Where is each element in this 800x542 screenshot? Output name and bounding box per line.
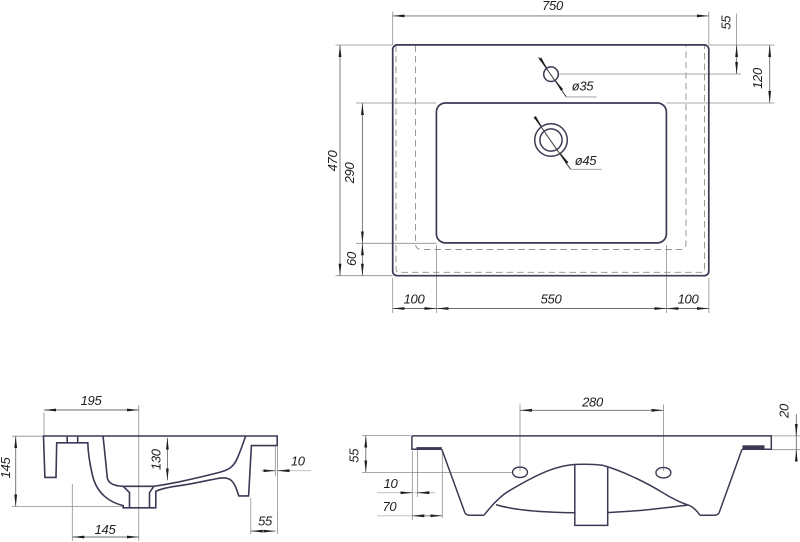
svg-text:750: 750 — [542, 0, 564, 13]
svg-text:60: 60 — [344, 251, 359, 266]
svg-text:145: 145 — [95, 522, 117, 537]
svg-text:145: 145 — [0, 457, 13, 479]
svg-text:100: 100 — [678, 292, 700, 307]
svg-text:130: 130 — [148, 448, 163, 470]
svg-text:10: 10 — [291, 453, 306, 468]
svg-text:470: 470 — [325, 150, 340, 172]
svg-text:55: 55 — [719, 15, 734, 30]
svg-text:55: 55 — [258, 514, 273, 529]
svg-text:100: 100 — [404, 292, 426, 307]
svg-text:70: 70 — [382, 499, 397, 514]
svg-text:120: 120 — [750, 67, 765, 89]
svg-text:ø35: ø35 — [572, 78, 595, 93]
svg-text:290: 290 — [342, 162, 357, 185]
svg-text:ø45: ø45 — [575, 153, 598, 168]
svg-text:550: 550 — [541, 292, 563, 307]
svg-text:280: 280 — [581, 394, 604, 409]
svg-text:20: 20 — [777, 403, 792, 419]
svg-text:55: 55 — [347, 448, 362, 463]
svg-text:195: 195 — [81, 393, 103, 408]
svg-text:10: 10 — [384, 476, 399, 491]
